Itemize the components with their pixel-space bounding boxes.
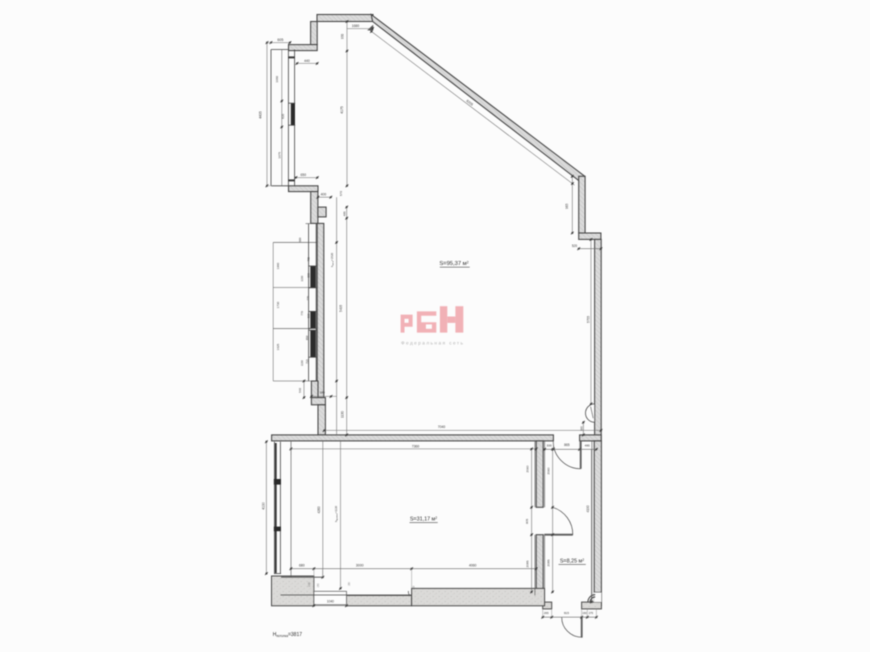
svg-text:820: 820 — [281, 113, 285, 118]
svg-text:680: 680 — [299, 564, 305, 568]
svg-text:265: 265 — [544, 611, 549, 615]
svg-text:390: 390 — [580, 426, 584, 431]
svg-text:915: 915 — [564, 611, 569, 615]
svg-text:3000: 3000 — [356, 564, 364, 568]
svg-text:400: 400 — [321, 192, 327, 196]
svg-text:1730: 1730 — [276, 301, 280, 308]
svg-text:Федеральная сеть: Федеральная сеть — [401, 341, 464, 346]
svg-text:1150: 1150 — [300, 360, 304, 366]
svg-text:2060: 2060 — [547, 467, 551, 474]
svg-text:560: 560 — [298, 388, 302, 393]
svg-text:770: 770 — [300, 311, 304, 316]
svg-text:765: 765 — [307, 257, 311, 262]
svg-text:600: 600 — [306, 273, 310, 278]
svg-text:1150: 1150 — [300, 275, 304, 281]
svg-text:S=31,17 м2: S=31,17 м2 — [410, 516, 437, 523]
svg-text:1130: 1130 — [341, 411, 345, 418]
svg-text:4260: 4260 — [317, 506, 321, 513]
svg-text:1675: 1675 — [277, 152, 281, 159]
svg-text:1680: 1680 — [275, 76, 279, 83]
svg-text:715: 715 — [305, 359, 309, 364]
svg-text:485: 485 — [343, 211, 347, 216]
svg-text:905: 905 — [525, 519, 529, 524]
svg-text:S=95,37 м2: S=95,37 м2 — [439, 261, 468, 268]
svg-text:1680: 1680 — [352, 24, 360, 28]
svg-text:930: 930 — [340, 34, 344, 40]
svg-text:380: 380 — [320, 391, 325, 395]
svg-text:7040: 7040 — [438, 425, 446, 429]
svg-text:4175: 4175 — [340, 106, 344, 114]
svg-text:865: 865 — [564, 443, 570, 447]
svg-text:5495: 5495 — [339, 305, 343, 312]
svg-text:1040: 1040 — [327, 600, 334, 604]
svg-text:300: 300 — [547, 443, 552, 447]
svg-text:1625: 1625 — [276, 343, 280, 350]
svg-text:605: 605 — [277, 38, 283, 42]
svg-text:480: 480 — [585, 443, 590, 447]
svg-text:1190: 1190 — [309, 581, 311, 587]
svg-text:4435: 4435 — [259, 111, 263, 119]
svg-text:580: 580 — [298, 237, 302, 242]
svg-text:S=8,25 м2: S=8,25 м2 — [560, 558, 584, 565]
svg-text:570: 570 — [339, 191, 343, 196]
svg-text:2085: 2085 — [547, 559, 551, 566]
svg-text:4130: 4130 — [261, 502, 265, 510]
svg-text:1960: 1960 — [276, 262, 280, 269]
svg-text:4190: 4190 — [586, 505, 590, 512]
svg-text:190: 190 — [582, 611, 587, 615]
svg-text:650: 650 — [300, 173, 306, 177]
svg-text:850: 850 — [305, 335, 309, 340]
svg-text:5755: 5755 — [586, 316, 590, 323]
svg-text:2085: 2085 — [526, 560, 530, 567]
svg-text:630: 630 — [306, 313, 310, 318]
svg-text:440: 440 — [304, 59, 310, 63]
svg-text:275: 275 — [589, 611, 594, 615]
svg-text:2060: 2060 — [526, 465, 530, 472]
svg-text:965: 965 — [565, 203, 569, 209]
svg-text:4060: 4060 — [469, 564, 477, 568]
svg-text:770: 770 — [306, 296, 310, 301]
svg-text:7360: 7360 — [412, 444, 420, 448]
svg-text:520: 520 — [572, 244, 578, 248]
